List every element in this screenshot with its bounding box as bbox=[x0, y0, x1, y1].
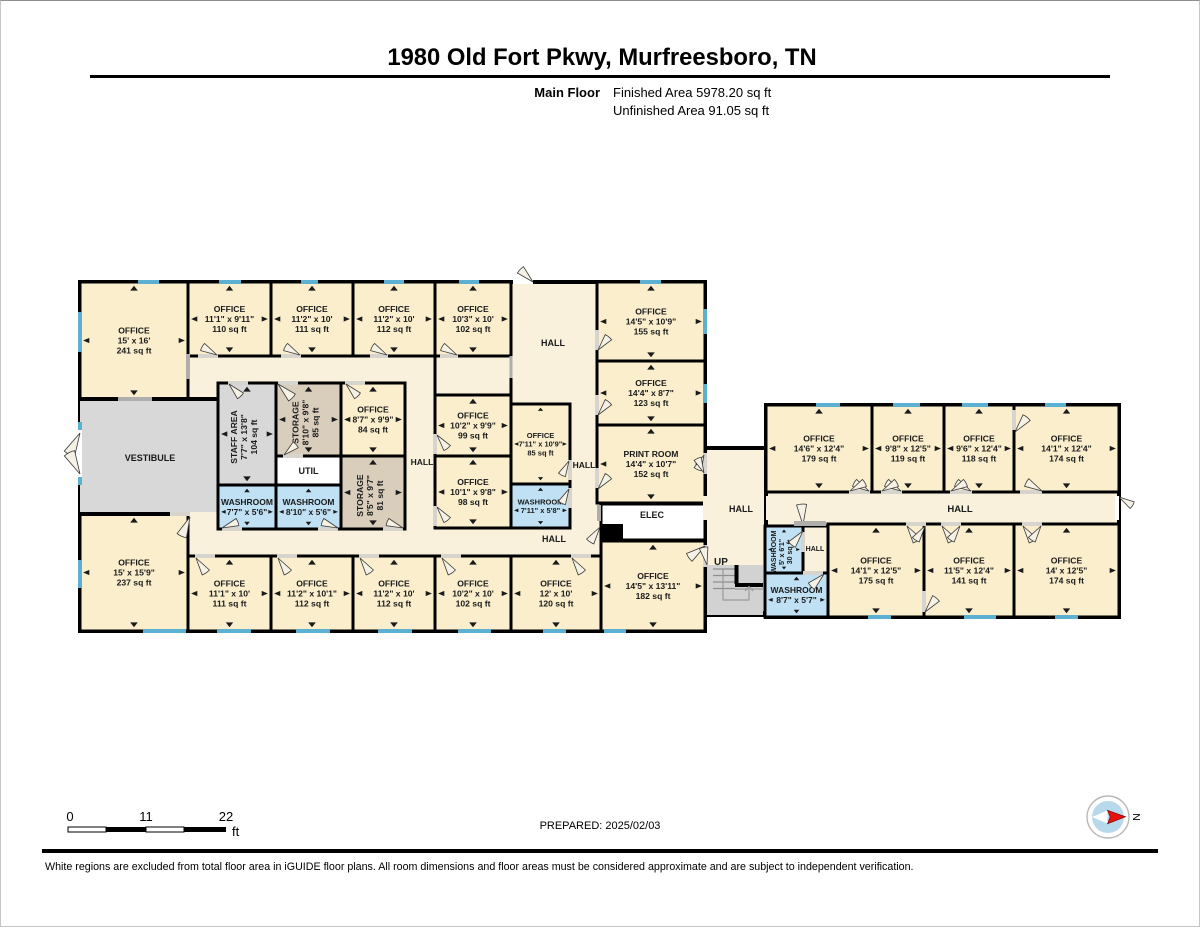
svg-text:N: N bbox=[1130, 813, 1142, 821]
